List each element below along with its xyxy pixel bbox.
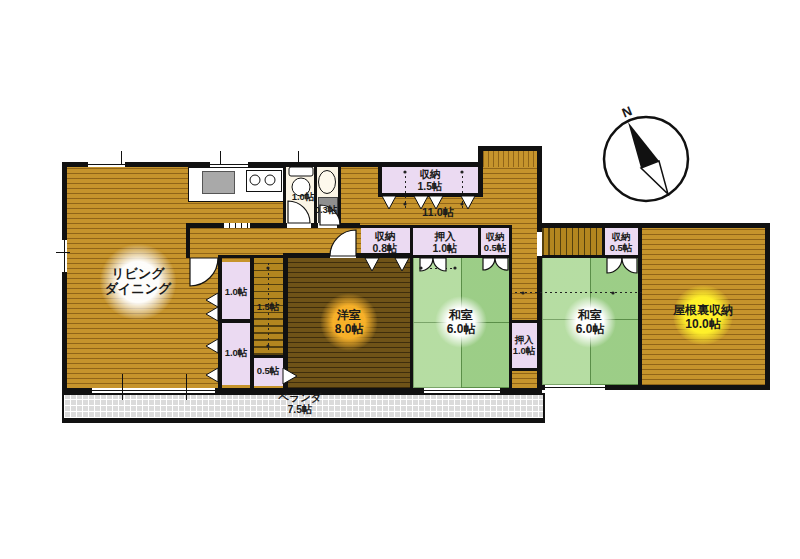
room-label-oshiire-top: 押入 1.0帖 xyxy=(432,230,457,255)
wall-segment xyxy=(410,225,413,392)
window xyxy=(62,240,67,272)
wall-segment xyxy=(542,255,638,258)
wall-segment xyxy=(478,146,542,151)
door-opening-wing xyxy=(537,232,542,256)
wall-segment xyxy=(254,355,283,358)
window xyxy=(88,162,125,167)
floorplan-canvas: リビング ダイニング 1.0帖 0.3帖 収納 1.5帖 11.0帖 収納 0.… xyxy=(0,0,800,559)
room-label-washroom: 0.3帖 xyxy=(315,204,338,215)
dimension-line xyxy=(420,268,456,269)
kitchen-sink xyxy=(202,171,235,194)
staircase-wing xyxy=(542,228,602,258)
wall-segment xyxy=(478,225,481,258)
window xyxy=(210,162,248,167)
wall-segment xyxy=(378,193,483,197)
wall-segment xyxy=(355,225,512,228)
room-label-toilet: 1.0帖 xyxy=(292,191,315,202)
room-label-japanese-room-2: 和室 6.0帖 xyxy=(576,308,605,336)
wall-segment xyxy=(509,368,538,371)
room-label-closet-lower: 1.0帖 xyxy=(225,347,248,358)
compass-needle-north-icon xyxy=(628,122,659,168)
wall-segment xyxy=(62,162,483,167)
room-label-stairs: 1.5帖 xyxy=(257,301,280,312)
wall-segment xyxy=(378,166,382,196)
compass-needle-south-icon xyxy=(641,161,668,194)
floor-protrusion-band xyxy=(483,151,537,167)
kitchen-hatch-opening xyxy=(223,223,250,228)
dimension-tick xyxy=(121,151,122,165)
room-label-storage-05-wing: 収納 0.5帖 xyxy=(610,231,633,253)
room-label-hall: 11.0帖 xyxy=(422,206,454,219)
wall-segment xyxy=(509,320,538,323)
wall-segment xyxy=(222,319,250,323)
wall-segment xyxy=(283,253,288,392)
wall-segment xyxy=(410,255,512,258)
room-label-storage-05-stairs: 0.5帖 xyxy=(257,365,280,376)
room-label-storage-05-main: 収納 0.5帖 xyxy=(484,231,507,253)
dimension-line xyxy=(405,168,406,208)
wall-segment xyxy=(542,223,770,228)
dimension-tick xyxy=(186,374,187,400)
wall-segment xyxy=(638,228,642,385)
dimension-tick xyxy=(298,151,299,165)
wall-segment xyxy=(338,167,341,228)
room-label-closet-upper: 1.0帖 xyxy=(225,286,248,297)
door-opening-toilet xyxy=(287,223,311,228)
compass xyxy=(604,117,688,201)
door-opening-washroom xyxy=(318,223,337,228)
room-label-western-room: 洋室 8.0帖 xyxy=(335,308,364,336)
room-label-veranda: ベランダ 7.5帖 xyxy=(279,391,322,416)
wall-segment xyxy=(537,146,542,392)
room-label-oshiire-mid: 押入 1.0帖 xyxy=(513,334,536,356)
room-label-japanese-room-1: 和室 6.0帖 xyxy=(447,308,476,336)
wall-segment xyxy=(250,258,254,389)
room-label-attic-storage: 屋根裏収納 10.0帖 xyxy=(673,303,733,331)
compass-circle xyxy=(604,117,688,201)
room-label-living-dining: リビング ダイニング xyxy=(105,266,172,297)
wall-segment xyxy=(62,162,67,393)
dimension-line xyxy=(462,168,463,208)
dimension-tick xyxy=(220,151,221,165)
room-label-storage-top: 収納 1.5帖 xyxy=(417,168,442,193)
wall-segment xyxy=(283,166,286,223)
dimension-tick xyxy=(122,374,123,400)
wall-segment xyxy=(478,146,483,196)
compass-north-label: N xyxy=(620,103,634,121)
room-label-storage-08: 収納 0.8帖 xyxy=(372,230,397,255)
wall-segment xyxy=(765,223,770,390)
kitchen-stove xyxy=(246,170,282,192)
wall-segment xyxy=(218,258,222,389)
wall-segment xyxy=(186,223,190,258)
door-opening-western-room xyxy=(330,253,356,258)
dimension-tick xyxy=(56,252,70,253)
window xyxy=(545,385,605,390)
wall-segment xyxy=(602,228,605,258)
wall-segment xyxy=(509,225,512,392)
dimension-line xyxy=(515,292,645,293)
